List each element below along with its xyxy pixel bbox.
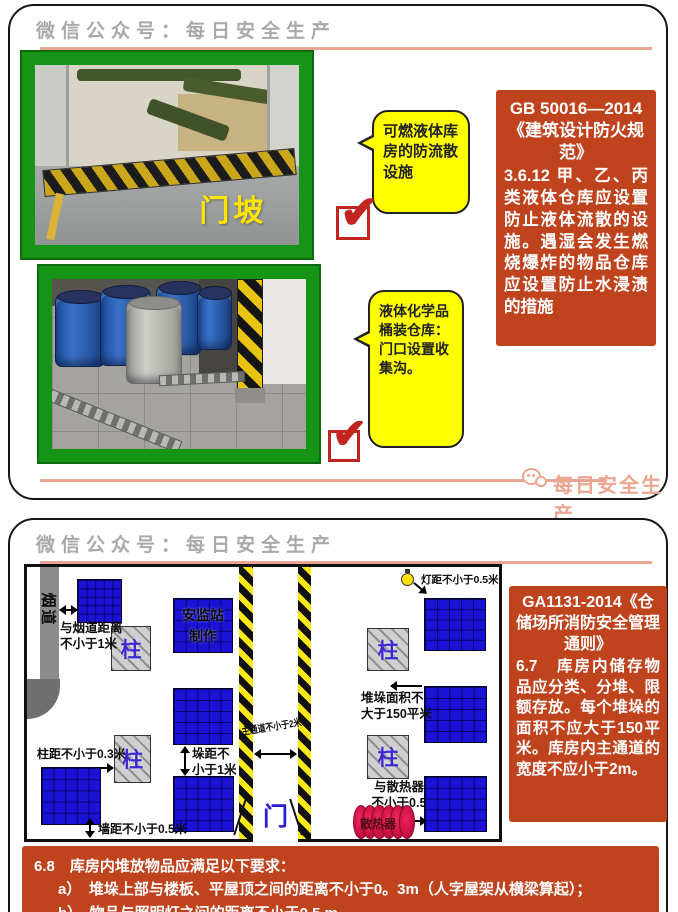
column-base [235, 388, 265, 403]
pile-spacing-arrow [184, 747, 186, 775]
photo-door-slope: 门坡 [20, 50, 314, 260]
building-column: 柱 [367, 628, 409, 671]
column-label: 柱 [121, 634, 142, 664]
flue-label: 烟道 [39, 590, 60, 630]
callout-text: 液体化学品桶装仓库：门口设置收集沟。 [379, 303, 449, 376]
blue-drum [197, 289, 233, 350]
annotation-column-distance: 柱距不小于0.3米 [37, 747, 126, 762]
storage-pile [41, 767, 101, 825]
main-aisle-arrow [255, 753, 296, 755]
regulation-box-ga1131: GA1131-2014《仓储场所消防安全管理通则》 6.7 库房内储存物品应分类… [509, 586, 667, 822]
wechat-account-header: 微信公众号：每日安全生产 [36, 16, 336, 43]
radiator-arrow [415, 820, 426, 822]
blue-drum [55, 293, 106, 368]
annotation-lamp-distance: 灯距不小于0.5米 [421, 574, 499, 587]
storage-pile [424, 598, 486, 651]
checked-checkbox: ✔ [336, 206, 370, 240]
annotation-pile-spacing: 垛距不 小于1米 [192, 747, 236, 778]
storage-pile [173, 688, 233, 745]
warehouse-layout-diagram: 烟道 安监站 制作 柱 柱 柱 [24, 564, 502, 842]
radiator-label: 散热器 [360, 815, 396, 832]
storage-pile [424, 776, 487, 832]
regulation-text: 3.6.12 甲、乙、丙类液体仓库应设置防止液体流散的设施。遇湿会发生燃烧爆炸的… [504, 166, 648, 318]
radiator: 散热器 [353, 805, 415, 839]
callout-bubble-drum-warehouse: 液体化学品桶装仓库：门口设置收集沟。 [368, 290, 464, 448]
regulation-text: 6.7 库房内储存物品应分类、分堆、限额存放。每个堆垛的面积不应大于150平米。… [516, 657, 660, 780]
annotation-wall-distance: 墙距不小于0.5米 [98, 822, 187, 837]
requirements-strip: 6.8 库房内堆放物品应满足以下要求： a） 堆垛上部与楼板、平屋顶之间的距离不… [22, 846, 659, 912]
maker-line1: 安监站 [182, 605, 224, 626]
column-label: 柱 [378, 742, 399, 772]
flue-duct-elbow [27, 679, 60, 719]
flue-distance-arrow [60, 609, 77, 611]
photo-door-slope-image: 门坡 [35, 65, 299, 245]
wechat-bubbles-icon [522, 468, 548, 492]
lamp-icon [401, 573, 414, 586]
storage-pile [424, 686, 487, 743]
requirements-heading: 6.8 库房内堆放物品应满足以下要求： [34, 855, 647, 878]
annotation-flue-distance: 与烟道距离 不小于1米 [60, 621, 123, 652]
photo-drum-warehouse-image [52, 279, 306, 449]
requirement-item-a: a） 堆垛上部与楼板、平屋顶之间的距离不小于0。3m（人字屋架从横梁算起）； [34, 878, 647, 901]
building-column: 柱 [367, 735, 409, 779]
checked-checkbox: ✔ [328, 430, 360, 462]
wall-distance-arrow [89, 819, 91, 837]
column-distance-arrow [99, 767, 113, 769]
footer-divider-line [40, 479, 605, 482]
wechat-account-header: 微信公众号：每日安全生产 [36, 530, 336, 557]
photo-drum-warehouse [37, 264, 321, 464]
regulation-box-gb50016: GB 50016—2014 《建筑设计防火规范》 3.6.12 甲、乙、丙类液体… [496, 90, 656, 346]
pile-area-arrow [391, 685, 422, 687]
regulation-code: GA1131-2014《仓储场所消防安全管理通则》 [516, 593, 660, 655]
storage-pile [77, 579, 122, 623]
gray-drum [126, 299, 182, 384]
door-opening [253, 833, 298, 845]
door-pillar-left [35, 65, 69, 180]
regulation-code: GB 50016—2014 [504, 98, 648, 120]
callout-text: 可燃液体库房的防流散设施 [383, 123, 458, 181]
hedge-row [77, 69, 241, 82]
slide-panel-bottom: 微信公众号：每日安全生产 烟道 安监站 制作 [8, 518, 668, 912]
white-wall [260, 279, 306, 384]
checkmark-icon: ✔ [332, 413, 367, 455]
storage-pile-maker: 安监站 制作 [173, 598, 233, 653]
regulation-name: 《建筑设计防火规范》 [504, 120, 648, 164]
annotation-pile-area: 堆垛面积不 大于150平米 [361, 691, 432, 722]
door-label: 门 [253, 797, 298, 833]
wechat-article-page: 微信公众号：每日安全生产 门坡 可燃液体库房的防流散设施 [0, 0, 678, 912]
aisle-stripe-right [298, 567, 311, 839]
checkmark-icon: ✔ [340, 189, 379, 235]
requirement-item-b: b） 物品与照明灯之间的距离不小于0.5 m, [34, 902, 647, 912]
slide-panel-top: 微信公众号：每日安全生产 门坡 可燃液体库房的防流散设施 [8, 4, 668, 500]
column-label: 柱 [378, 635, 399, 665]
callout-bubble-flammable-liquid: 可燃液体库房的防流散设施 [372, 110, 470, 214]
maker-line2: 制作 [189, 626, 217, 647]
photo-caption: 门坡 [199, 186, 267, 230]
